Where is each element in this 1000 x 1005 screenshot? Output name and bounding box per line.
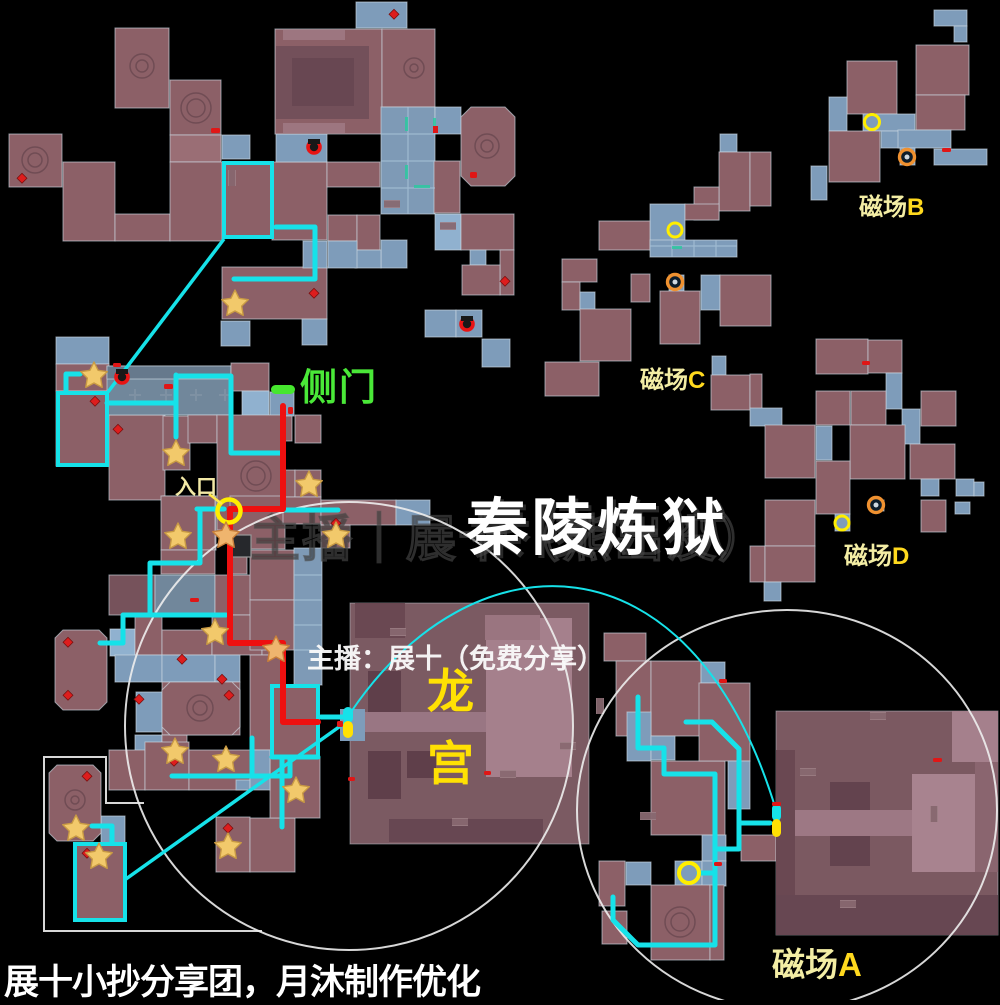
svg-text:磁场D: 磁场D bbox=[844, 542, 909, 570]
svg-text:磁场A: 磁场A bbox=[772, 946, 862, 983]
svg-text:宫: 宫 bbox=[427, 737, 474, 790]
svg-text:秦陵炼狱: 秦陵炼狱 bbox=[465, 494, 728, 563]
svg-text:展十小抄分享团，月沐制作优化: 展十小抄分享团，月沐制作优化 bbox=[4, 963, 481, 1000]
svg-text:磁场C: 磁场C bbox=[640, 366, 705, 394]
svg-text:侧门: 侧门 bbox=[300, 367, 378, 408]
svg-text:龙: 龙 bbox=[427, 665, 474, 718]
svg-text:磁场B: 磁场B bbox=[859, 193, 924, 221]
svg-text:入口: 入口 bbox=[175, 476, 217, 499]
